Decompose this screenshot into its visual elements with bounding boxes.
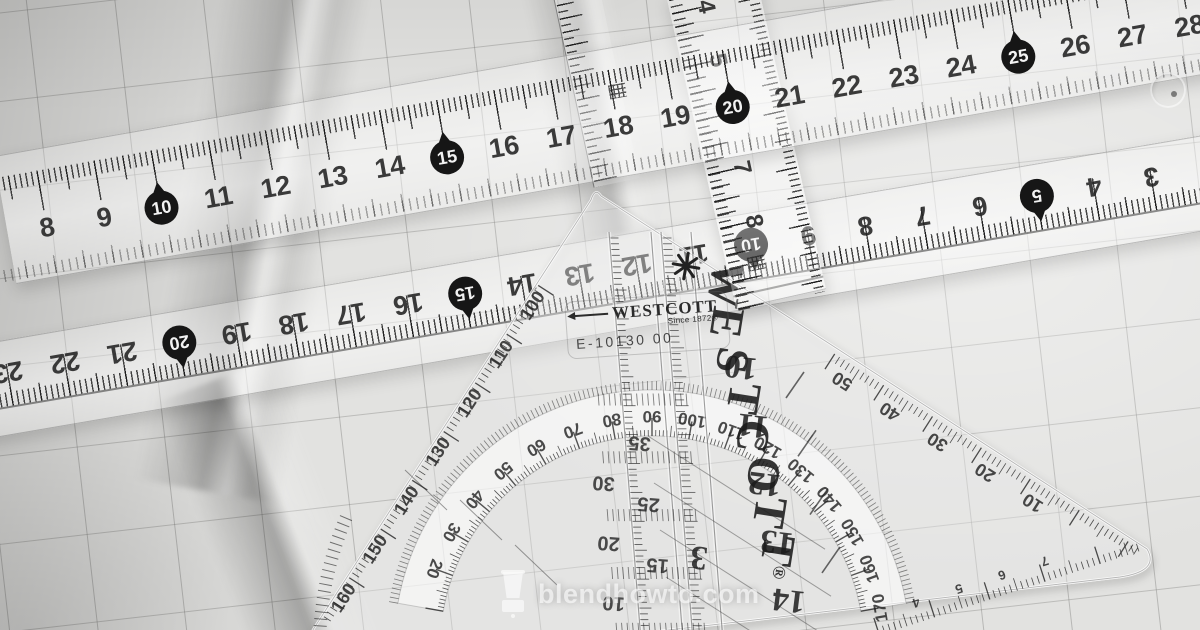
ruler-number: 28: [1172, 9, 1200, 45]
ruler-number: 13: [562, 256, 597, 292]
brand-block: WESTCOTT Since 1872® E-10130 00: [564, 290, 731, 359]
ruler-number: 16: [487, 129, 522, 165]
ruler-number: 14: [373, 150, 408, 186]
teardrop-badge: 10: [142, 188, 181, 227]
ruler-number: 22: [829, 69, 864, 105]
watermark-text: blendhowto.com: [538, 579, 759, 610]
ruler-number: 21: [772, 79, 807, 115]
ruler-number: 27: [1115, 19, 1150, 55]
ruler-number: 23: [0, 354, 25, 390]
ruler-number: 26: [1058, 29, 1093, 65]
arrow-icon: [574, 313, 608, 317]
teardrop-badge: 20: [713, 87, 752, 126]
ruler-number: 16: [391, 286, 426, 322]
ruler-number: 12: [619, 246, 654, 282]
ruler-hole: [1150, 72, 1186, 108]
ruler-number: 17: [544, 119, 579, 155]
ruler-number: 23: [887, 59, 922, 95]
teardrop-badge: 15: [427, 138, 466, 177]
ruler-number: 18: [601, 109, 636, 145]
crosshatch-mark: [608, 83, 627, 100]
teardrop-badge: 25: [999, 37, 1038, 76]
ruler-number: 11: [202, 180, 235, 215]
ruler-number: 8: [37, 211, 57, 244]
blender-icon: [500, 572, 526, 616]
ruler-number: 17: [333, 295, 368, 331]
ruler-number: 12: [258, 170, 293, 206]
watermark: blendhowto.com: [500, 572, 759, 616]
ruler-number: 22: [48, 344, 83, 380]
ruler-number: 14: [505, 266, 540, 302]
photo-scene: 8910111213141516171819202122232425262728…: [0, 0, 1200, 630]
ruler-number: 21: [105, 334, 140, 370]
ruler-number: 19: [219, 315, 254, 351]
ruler-number: 9: [94, 201, 114, 234]
ruler-number: 24: [944, 49, 979, 85]
ruler-number: 19: [658, 99, 693, 135]
ruler-number: 4: [690, 0, 720, 16]
ruler-number: 18: [276, 305, 311, 341]
ruler-number: 13: [315, 160, 350, 196]
